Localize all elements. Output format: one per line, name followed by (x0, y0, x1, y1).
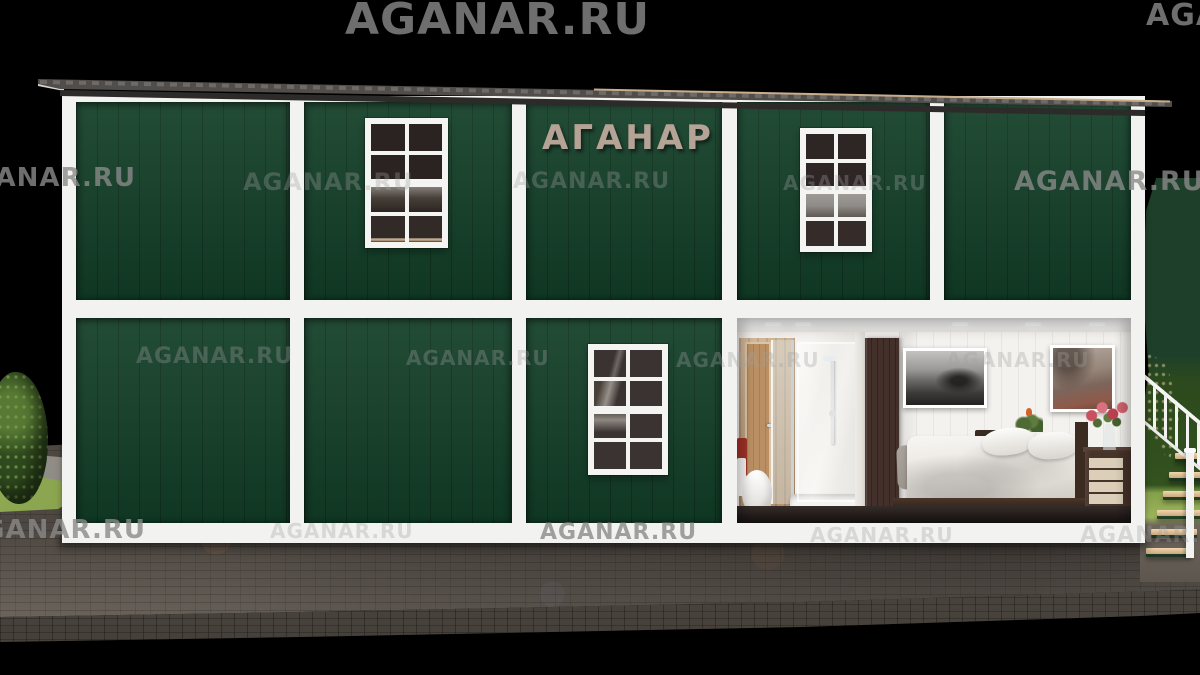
building-facade: АГАНАР (62, 96, 1145, 543)
bathroom-partition (855, 332, 865, 508)
shower-chrome-strip (791, 340, 794, 504)
window-pane (838, 192, 866, 217)
window-pane (630, 350, 662, 377)
shower-glass-front (797, 342, 857, 502)
picture-blackwhite (903, 348, 987, 408)
window-pane (594, 381, 626, 408)
stair-newel-cap (1184, 448, 1196, 453)
dresser-drawers (1089, 458, 1123, 508)
plant-flower (1026, 408, 1032, 416)
green-panel-lower-2 (304, 318, 512, 523)
window-pane (594, 350, 626, 377)
window-pane (594, 442, 626, 469)
window-pane (806, 134, 834, 159)
window-pane (409, 155, 443, 182)
window-pane (838, 134, 866, 159)
window-pane (806, 192, 834, 217)
window-pane (838, 163, 866, 188)
ceiling-light (765, 322, 781, 326)
building-sign: АГАНАР (542, 118, 714, 154)
interior-cutaway (737, 318, 1131, 523)
window-pane (371, 216, 405, 243)
stair-newel-post (1186, 452, 1194, 558)
green-panel-upper-5 (944, 102, 1131, 300)
window-upper-left (365, 118, 448, 248)
roof (34, 74, 1174, 120)
green-panel-upper-1 (76, 102, 290, 300)
wardrobe (865, 338, 899, 510)
stair-tread (1163, 491, 1200, 497)
interior-floor (737, 506, 1131, 523)
flowers (1083, 398, 1131, 430)
window-pane (371, 185, 405, 212)
window-lower-center (588, 344, 668, 475)
render-canvas: АГАНАР (0, 0, 1200, 675)
window-pane (409, 216, 443, 243)
window-pane (409, 124, 443, 151)
window-pane (594, 412, 626, 439)
ceiling-light (952, 322, 968, 326)
window-pane (371, 124, 405, 151)
window-pane (630, 442, 662, 469)
stair-tread (1169, 472, 1200, 478)
window-pane (806, 221, 834, 246)
shower-glass-back (771, 340, 793, 504)
ceiling-light (1025, 322, 1041, 326)
window-pane (630, 412, 662, 439)
window-pane (409, 185, 443, 212)
window-pane (838, 221, 866, 246)
window-pane (630, 381, 662, 408)
window-upper-right (800, 128, 872, 252)
green-panel-lower-1 (76, 318, 290, 523)
window-pane (806, 163, 834, 188)
window-pane (371, 155, 405, 182)
ceiling-light (795, 322, 811, 326)
ceiling-light (1089, 322, 1105, 326)
